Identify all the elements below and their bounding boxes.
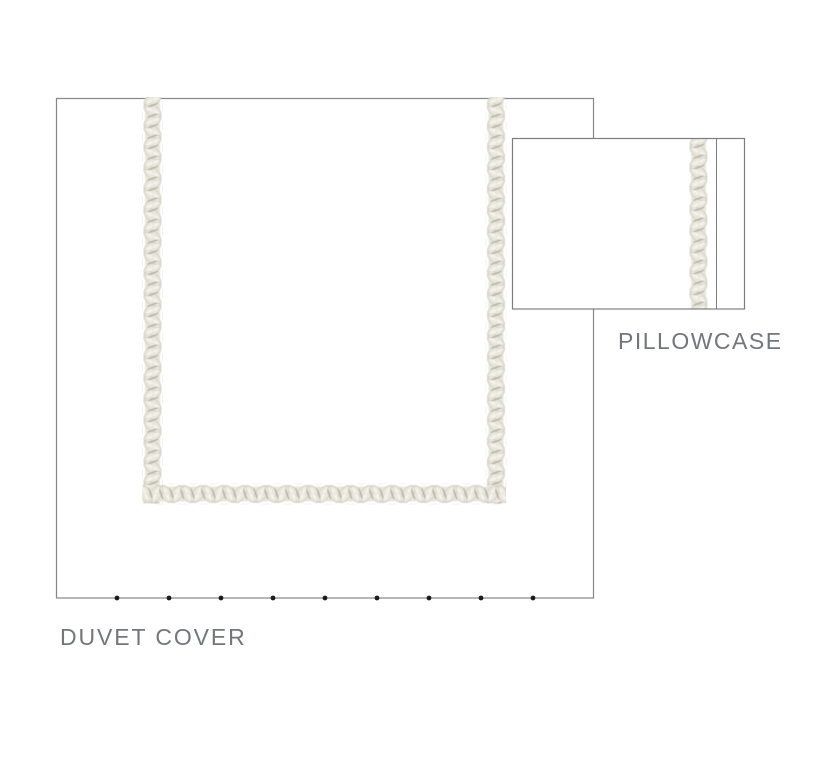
- svg-text:PILLOWCASE: PILLOWCASE: [618, 328, 783, 354]
- svg-text:DUVET COVER: DUVET COVER: [60, 624, 247, 650]
